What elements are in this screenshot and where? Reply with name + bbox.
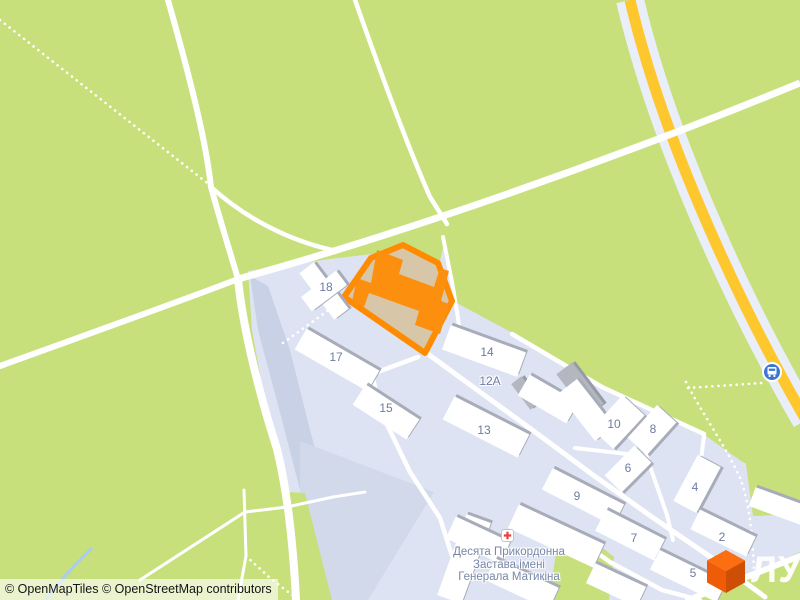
map-canvas[interactable]: 1817151412А13108694725 Десята Прикордонн…	[0, 0, 800, 600]
building-number-label: 5	[690, 566, 697, 580]
poi-name-line: Застава імені	[453, 559, 565, 572]
bus-stop-icon	[761, 361, 783, 383]
building-number-label: 2	[719, 530, 726, 544]
building-number-label: 17	[329, 350, 342, 364]
lun-logo[interactable]: ЛУН	[706, 548, 800, 596]
poi-name-line: Десята Прикордонна	[453, 546, 565, 559]
building-number-label: 12А	[479, 374, 500, 388]
lun-cube-icon	[706, 548, 751, 596]
poi-name-line: Генерала Матикіна	[453, 571, 565, 584]
building-number-label: 7	[631, 531, 638, 545]
building-number-label: 8	[650, 422, 657, 436]
building-number-label: 15	[379, 401, 392, 415]
building-number-label: 14	[480, 345, 493, 359]
attribution-text[interactable]: © OpenMapTiles © OpenStreetMap contribut…	[5, 582, 272, 596]
building-number-label: 9	[574, 489, 581, 503]
map-tiles	[0, 0, 800, 600]
building-number-label: 10	[607, 417, 620, 431]
poi-label-hospital: Десята Прикордонна Застава імені Генерал…	[453, 546, 565, 584]
building-number-label: 13	[477, 423, 490, 437]
map-attribution[interactable]: © OpenMapTiles © OpenStreetMap contribut…	[0, 579, 278, 600]
building-number-label: 18	[319, 280, 332, 294]
hospital-cross-icon	[501, 529, 514, 542]
lun-logo-text: ЛУН	[751, 549, 800, 591]
building-number-label: 6	[625, 461, 632, 475]
building-number-label: 4	[692, 480, 699, 494]
